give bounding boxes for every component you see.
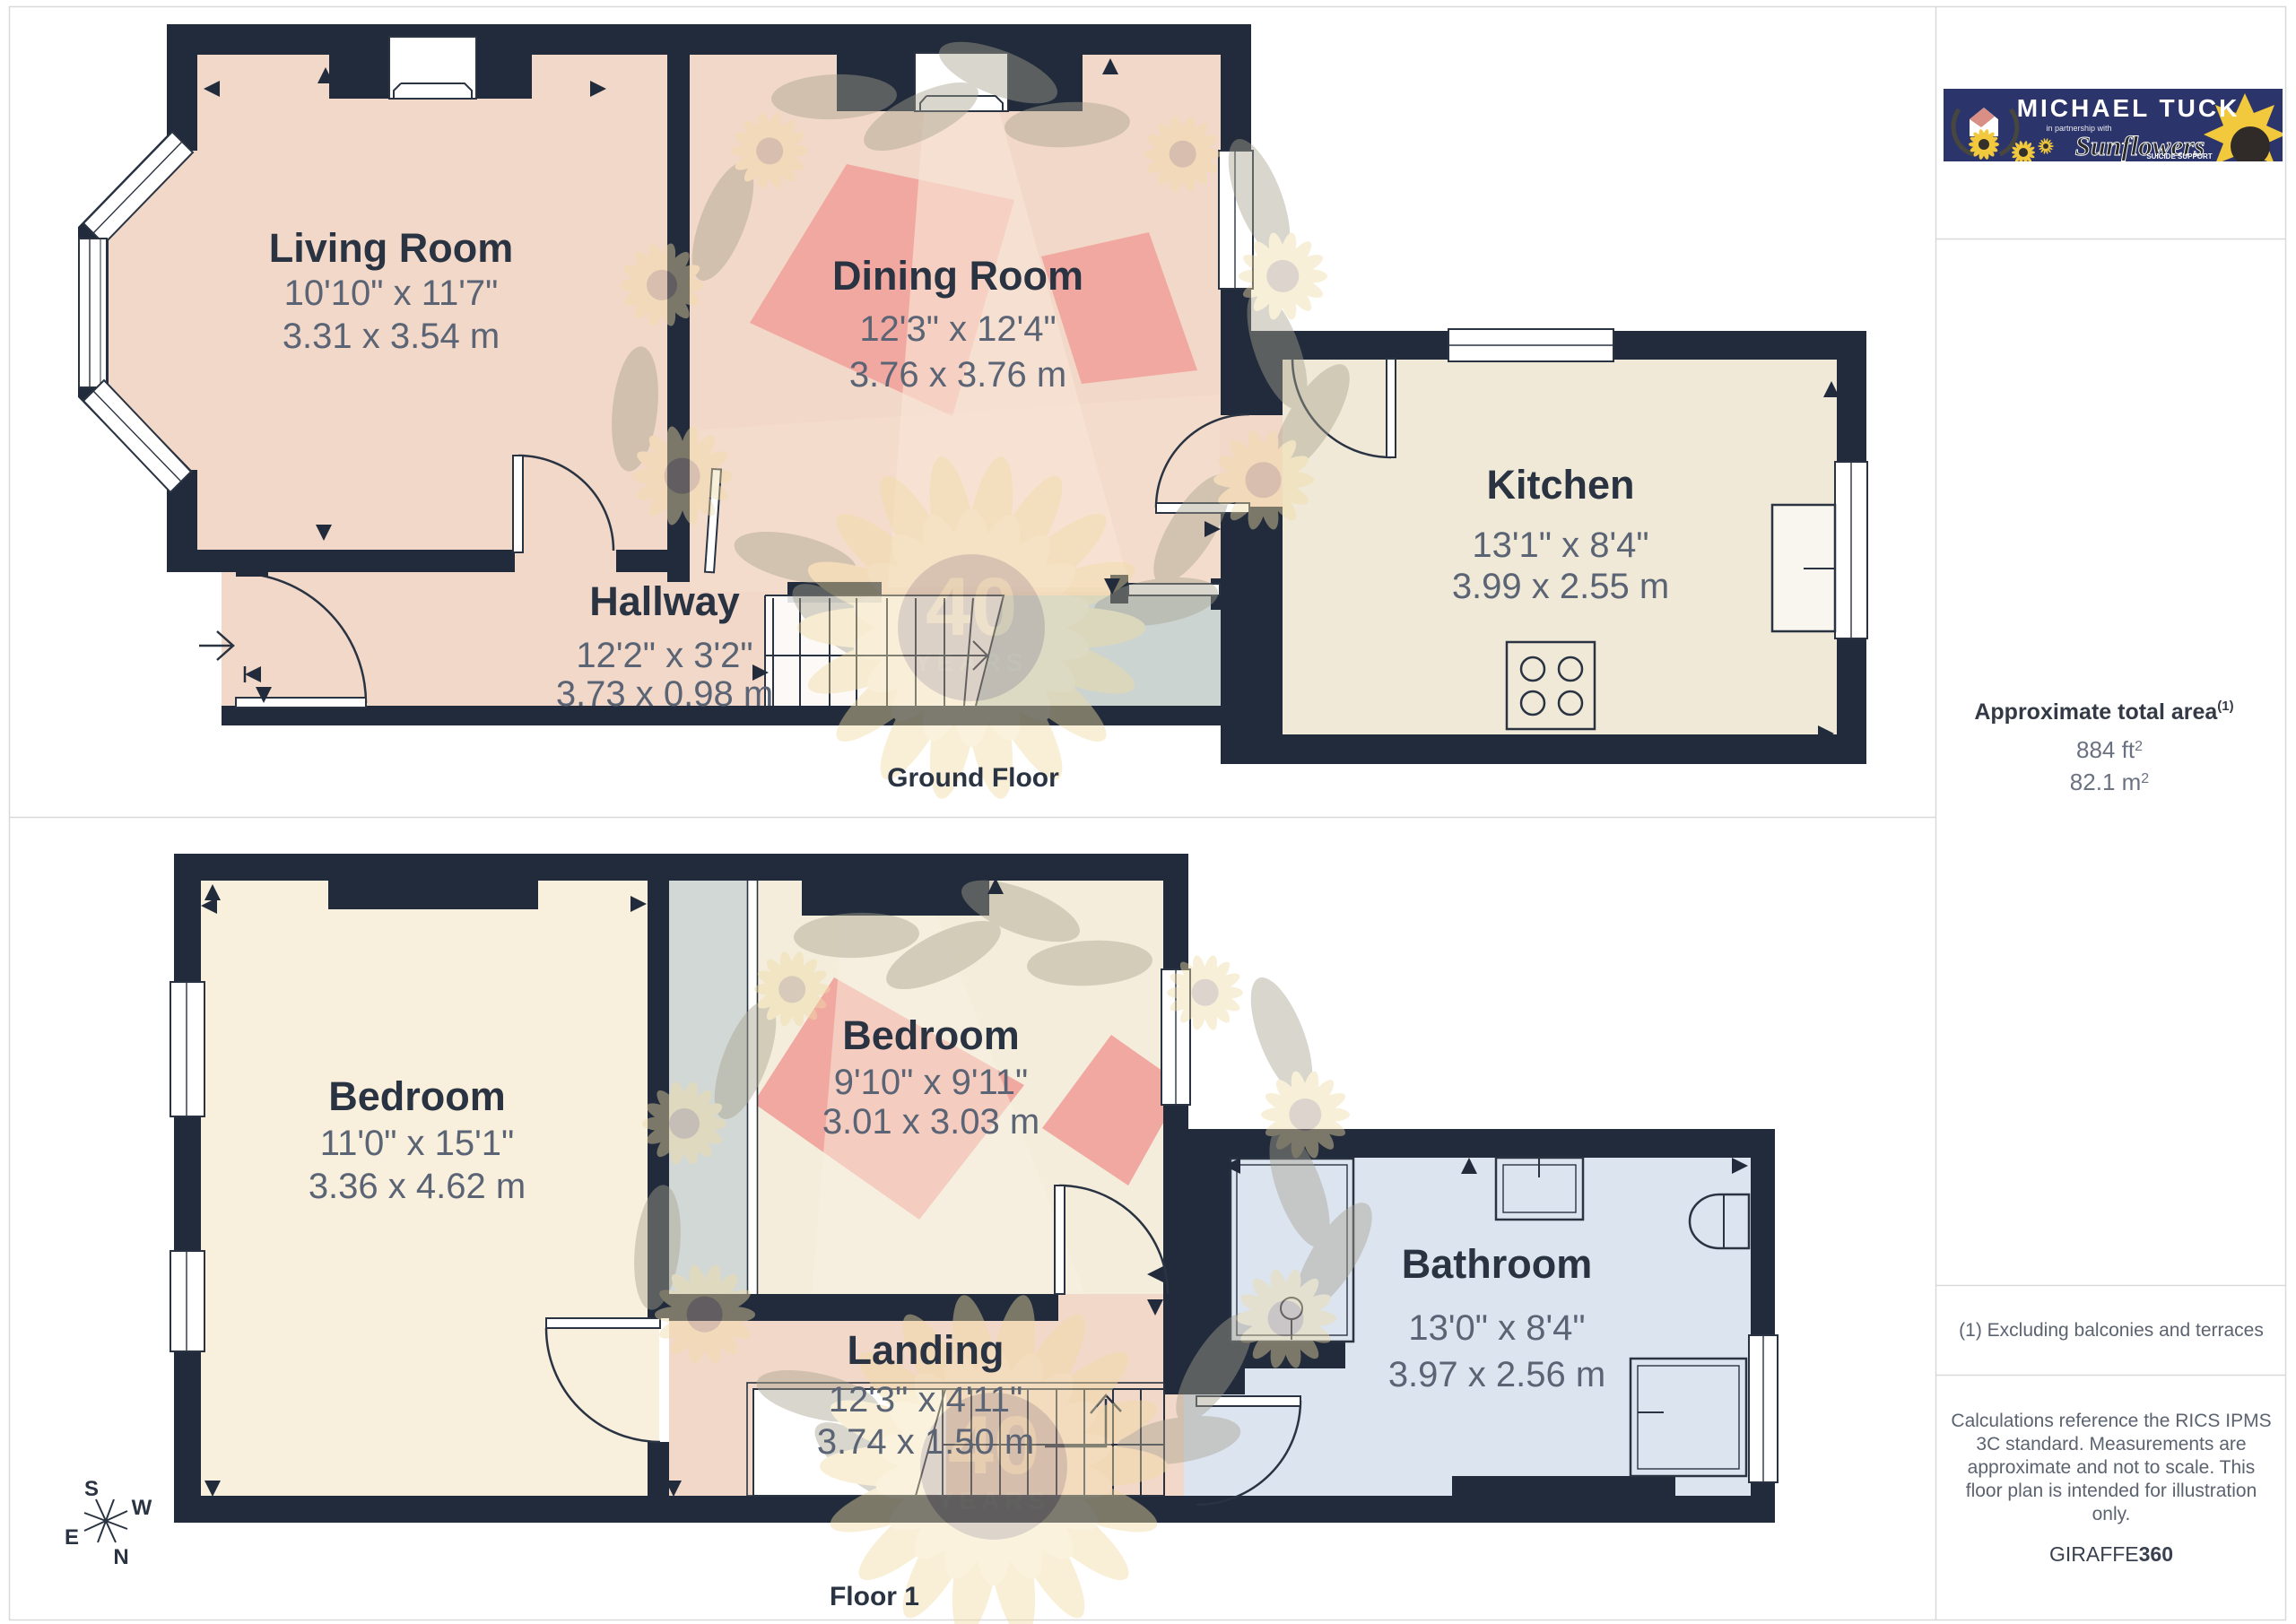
svg-text:Bedroom: Bedroom: [842, 1012, 1020, 1058]
svg-text:12'2" x 3'2": 12'2" x 3'2": [576, 636, 752, 675]
svg-text:3.99 x 2.55 m: 3.99 x 2.55 m: [1452, 567, 1669, 606]
svg-text:MICHAEL TUCK: MICHAEL TUCK: [2017, 94, 2240, 122]
svg-text:10'10" x 11'7": 10'10" x 11'7": [284, 274, 499, 313]
svg-text:3.36 x 4.62 m: 3.36 x 4.62 m: [309, 1167, 526, 1206]
svg-text:3.31 x 3.54 m: 3.31 x 3.54 m: [283, 317, 500, 356]
svg-text:Hallway: Hallway: [589, 578, 740, 624]
svg-text:Approximate total area(1): Approximate total area(1): [1974, 699, 2233, 725]
svg-text:Kitchen: Kitchen: [1486, 462, 1634, 508]
svg-text:Ground Floor: Ground Floor: [887, 763, 1059, 793]
svg-text:Dining Room: Dining Room: [832, 253, 1083, 299]
svg-text:3C standard. Measurements are: 3C standard. Measurements are: [1976, 1434, 2246, 1455]
svg-text:884 ft2: 884 ft2: [2076, 736, 2143, 763]
svg-text:Landing: Landing: [848, 1327, 1004, 1373]
svg-text:3.73 x 0.98 m: 3.73 x 0.98 m: [556, 674, 773, 714]
svg-text:floor plan is intended for ill: floor plan is intended for illustration: [1966, 1481, 2257, 1501]
svg-text:N: N: [113, 1545, 128, 1569]
svg-text:approximate and not to scale.: approximate and not to scale. This: [1968, 1457, 2256, 1478]
svg-text:3.97 x 2.56 m: 3.97 x 2.56 m: [1388, 1355, 1605, 1394]
svg-text:Living Room: Living Room: [269, 225, 513, 271]
svg-text:GIRAFFE360: GIRAFFE360: [2049, 1542, 2173, 1566]
svg-text:13'0" x 8'4": 13'0" x 8'4": [1408, 1308, 1585, 1348]
svg-text:12'3" x 12'4": 12'3" x 12'4": [859, 309, 1056, 349]
svg-text:9'10" x 9'11": 9'10" x 9'11": [834, 1063, 1028, 1102]
svg-text:Floor 1: Floor 1: [830, 1582, 919, 1611]
svg-text:W: W: [132, 1496, 152, 1520]
svg-text:E: E: [65, 1525, 79, 1550]
svg-text:82.1 m2: 82.1 m2: [2070, 769, 2150, 795]
svg-text:Calculations reference the RIC: Calculations reference the RICS IPMS: [1951, 1411, 2271, 1431]
svg-text:only.: only.: [2092, 1504, 2131, 1524]
svg-text:YEARS: YEARS: [937, 1487, 1050, 1515]
svg-text:11'0" x 15'1": 11'0" x 15'1": [320, 1124, 514, 1163]
svg-text:3.74 x 1.50 m: 3.74 x 1.50 m: [817, 1422, 1034, 1462]
svg-text:3.01 x 3.03 m: 3.01 x 3.03 m: [822, 1102, 1039, 1142]
svg-text:40: 40: [926, 561, 1017, 653]
svg-text:YEARS: YEARS: [915, 648, 1028, 676]
svg-text:(1) Excluding balconies and te: (1) Excluding balconies and terraces: [1959, 1320, 2264, 1341]
svg-text:13'1" x 8'4": 13'1" x 8'4": [1472, 525, 1648, 565]
svg-text:Bathroom: Bathroom: [1402, 1241, 1593, 1287]
svg-text:S: S: [84, 1477, 99, 1501]
svg-text:12'3" x 4'11": 12'3" x 4'11": [829, 1380, 1022, 1420]
svg-text:Bedroom: Bedroom: [328, 1073, 506, 1119]
svg-text:SUICIDE SUPPORT: SUICIDE SUPPORT: [2146, 152, 2212, 161]
svg-text:3.76 x 3.76 m: 3.76 x 3.76 m: [849, 355, 1066, 395]
